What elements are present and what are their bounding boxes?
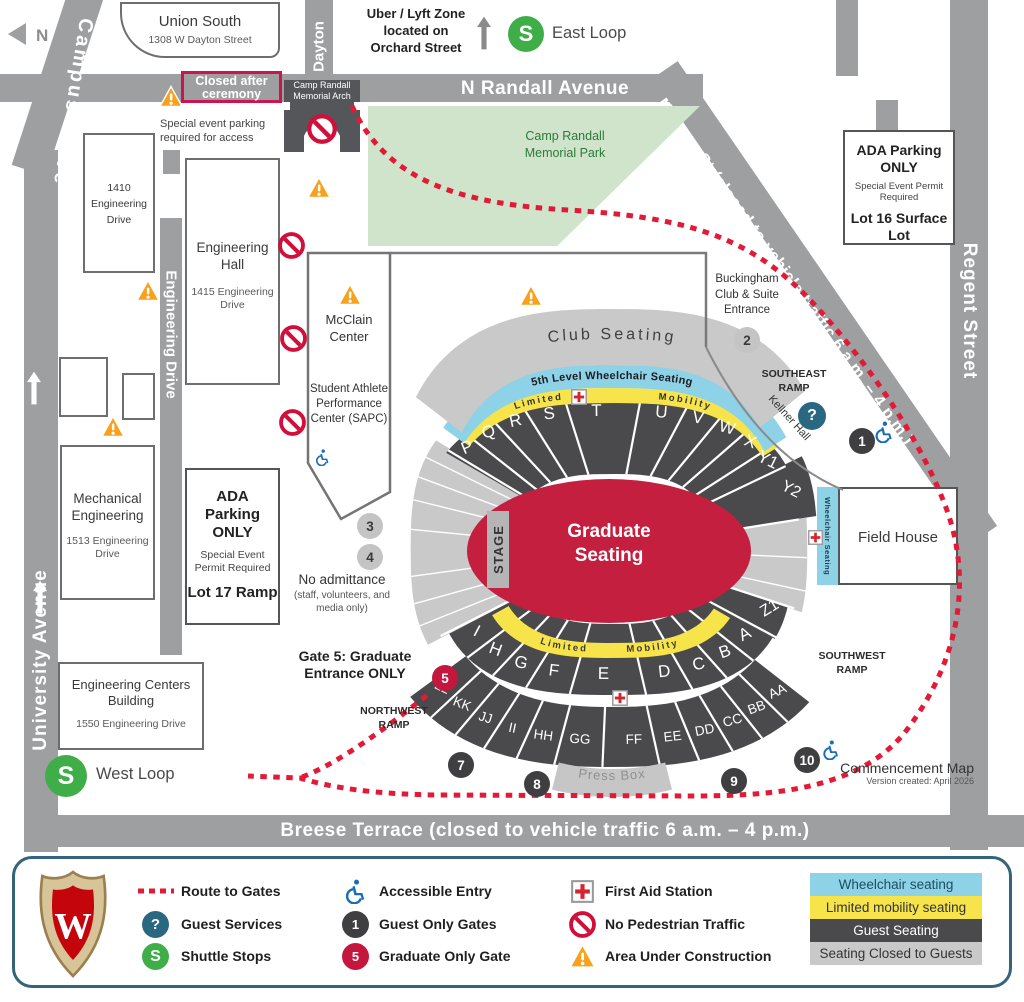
- legend-route-label: Route to Gates: [181, 883, 281, 899]
- gate-10: 10: [794, 747, 820, 773]
- accessible-icon-3: [314, 449, 331, 471]
- north-letter: N: [36, 26, 48, 45]
- west-loop-s: S: [58, 762, 75, 791]
- section-FF: FF: [625, 731, 642, 747]
- northwest-ramp-label: NORTHWEST RAMP: [350, 705, 438, 732]
- section-GG: GG: [569, 731, 591, 747]
- first-aid-icon-3: [808, 530, 823, 550]
- no-admittance-sub: (staff, volunteers, and media only): [283, 589, 401, 615]
- legend-first-aid-label: First Aid Station: [605, 883, 713, 899]
- no-pedestrian-icon-1: [307, 114, 337, 149]
- first-aid-icon-2: [612, 690, 628, 711]
- construction-icon-2: [307, 176, 331, 205]
- east-loop-shuttle-icon: S: [508, 16, 544, 52]
- gate-2: 2: [734, 327, 760, 353]
- section-HH: HH: [533, 726, 554, 743]
- gate-4: 4: [357, 544, 383, 570]
- guest-services-q: ?: [807, 407, 817, 425]
- guest-services-icon: ?: [798, 402, 826, 430]
- legend-guest-services-label: Guest Services: [181, 916, 282, 932]
- swatch-guest-seating: Guest Seating: [810, 919, 982, 942]
- special-parking-note: Special event parking required for acces…: [160, 118, 278, 146]
- east-loop-label: East Loop: [552, 24, 626, 43]
- route-dashes-icon: [137, 886, 175, 896]
- uw-crest-logo: W: [33, 867, 113, 981]
- legend-shuttle-label: Shuttle Stops: [181, 948, 271, 964]
- accessible-icon-2: [821, 740, 841, 765]
- gate-7: 7: [448, 752, 474, 778]
- accessible-icon-1: [873, 421, 895, 448]
- graduate-gate-icon: 5: [342, 943, 369, 970]
- graduate-seating-label: Graduate Seating: [549, 520, 669, 568]
- swatch-wheelchair-seating: Wheelchair seating: [810, 873, 982, 896]
- gate-3: 3: [357, 513, 383, 539]
- no-pedestrian-icon-4: [279, 409, 306, 441]
- first-aid-icon-1: [571, 389, 587, 410]
- section-E: E: [598, 664, 610, 683]
- shuttle-stop-icon: S: [142, 943, 169, 970]
- no-pedestrian-icon-3: [280, 325, 307, 357]
- commencement-map: Campus Drive University Avenue Engineeri…: [0, 0, 1024, 1002]
- north-compass: N: [6, 20, 62, 48]
- construction-icon-5: [519, 284, 543, 313]
- accessible-icon: [343, 879, 368, 904]
- gate5-note: Gate 5: Graduate Entrance ONLY: [280, 648, 430, 682]
- section-EE: EE: [663, 728, 683, 745]
- east-loop-s: S: [519, 21, 534, 47]
- north-arrow-icon: [8, 23, 26, 45]
- section-D: D: [657, 661, 671, 681]
- uber-up-arrow-icon: [477, 4, 493, 62]
- construction-icon-6: [101, 415, 125, 444]
- gate-1: 1: [849, 428, 875, 454]
- legend-accessible-label: Accessible Entry: [379, 883, 492, 899]
- commencement-version: Version created: April 2026: [790, 776, 974, 786]
- legend-guest-gates-label: Guest Only Gates: [379, 916, 496, 932]
- park-label: Camp Randall Memorial Park: [500, 128, 630, 162]
- arch-label: Camp Randall Memorial Arch: [285, 80, 359, 102]
- construction-icon-4: [338, 283, 362, 312]
- no-pedestrian-icon: [569, 911, 596, 938]
- no-admittance-title: No admittance: [283, 572, 401, 587]
- no-pedestrian-icon-2: [278, 232, 305, 264]
- stage-label: STAGE: [491, 525, 506, 574]
- legend-construction-label: Area Under Construction: [605, 948, 771, 964]
- uber-lyft-note: Uber / Lyft Zone located on Orchard Stre…: [360, 6, 472, 57]
- legend: W Route to Gates ? Guest Services S Shut…: [12, 856, 1012, 988]
- stage-box: STAGE: [487, 511, 509, 588]
- swatch-limited-mobility: Limited mobility seating: [810, 896, 982, 919]
- construction-icon-1: [159, 85, 183, 114]
- section-U: U: [655, 402, 669, 422]
- legend-no-ped-label: No Pedestrian Traffic: [605, 916, 745, 932]
- swatch-closed-seating: Seating Closed to Guests: [810, 942, 982, 965]
- gate-5: 5: [432, 665, 458, 691]
- west-loop-label: West Loop: [96, 765, 175, 784]
- street-up-arrow-icon-2: [33, 580, 47, 619]
- gate-8: 8: [524, 771, 550, 797]
- section-T: T: [591, 401, 602, 420]
- guest-gate-icon: 1: [342, 911, 369, 938]
- closed-after-ceremony-box: Closed after ceremony: [181, 71, 282, 103]
- crest-w: W: [54, 907, 91, 948]
- gate-9: 9: [721, 768, 747, 794]
- mcclain-label: McClain Center: [310, 312, 388, 346]
- sapc-label: Student Athlete Performance Center (SAPC…: [308, 382, 390, 427]
- southwest-ramp-label: SOUTHWEST RAMP: [808, 650, 896, 677]
- first-aid-icon: [571, 880, 594, 903]
- press-box-label: Press Box: [578, 766, 647, 783]
- construction-icon-3: [136, 279, 160, 308]
- legend-graduate-gate-label: Graduate Only Gate: [379, 948, 510, 964]
- no-admittance-note: No admittance (staff, volunteers, and me…: [283, 572, 401, 615]
- construction-icon: [569, 943, 596, 970]
- street-up-arrow-icon-1: [27, 371, 41, 410]
- question-circle-icon: ?: [142, 911, 169, 938]
- west-loop-shuttle-icon: S: [45, 755, 87, 797]
- buckingham-label: Buckingham Club & Suite Entrance: [703, 272, 791, 319]
- section-S: S: [542, 403, 555, 423]
